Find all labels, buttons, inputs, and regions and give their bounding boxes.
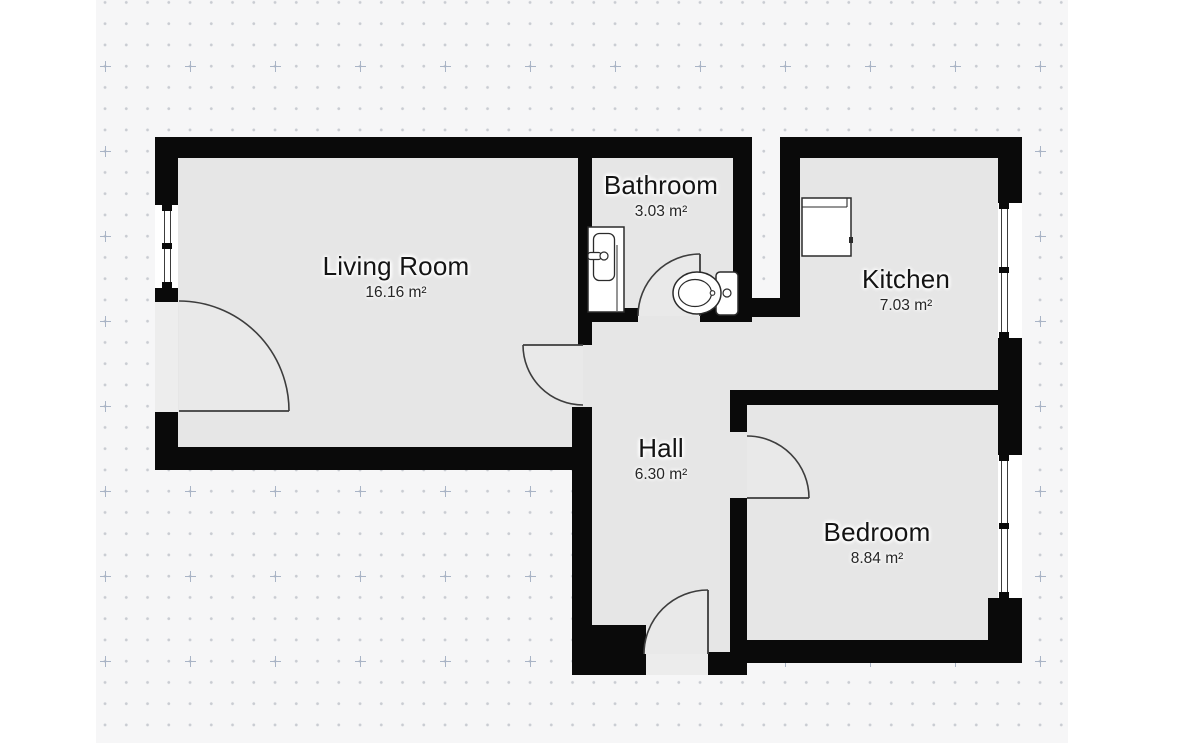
door-swing-living-room-west[interactable] bbox=[179, 301, 289, 411]
room-label-bedroom: Bedroom 8.84 m² bbox=[824, 517, 931, 569]
door-swing-entrance[interactable] bbox=[644, 590, 708, 654]
room-label-bathroom: Bathroom 3.03 m² bbox=[604, 170, 718, 222]
floor-plan: Living Room 16.16 m² Bathroom 3.03 m² Ki… bbox=[0, 0, 1179, 743]
room-name: Living Room bbox=[323, 251, 470, 281]
room-area: 16.16 m² bbox=[323, 283, 470, 303]
room-name: Bedroom bbox=[824, 517, 931, 547]
room-name: Bathroom bbox=[604, 170, 718, 200]
door-swing-living-room-hall[interactable] bbox=[523, 345, 583, 405]
room-area: 6.30 m² bbox=[635, 465, 688, 485]
room-area: 7.03 m² bbox=[862, 296, 950, 316]
room-label-kitchen: Kitchen 7.03 m² bbox=[862, 264, 950, 316]
room-label-living-room: Living Room 16.16 m² bbox=[323, 251, 470, 303]
room-label-hall: Hall 6.30 m² bbox=[635, 433, 688, 485]
door-swing-bedroom[interactable] bbox=[747, 436, 809, 498]
room-name: Kitchen bbox=[862, 264, 950, 294]
stove-symbol[interactable] bbox=[802, 198, 853, 256]
room-name: Hall bbox=[635, 433, 688, 463]
room-area: 8.84 m² bbox=[824, 549, 931, 569]
sink-symbol[interactable] bbox=[588, 227, 624, 312]
toilet-symbol[interactable] bbox=[673, 272, 738, 315]
room-area: 3.03 m² bbox=[604, 202, 718, 222]
